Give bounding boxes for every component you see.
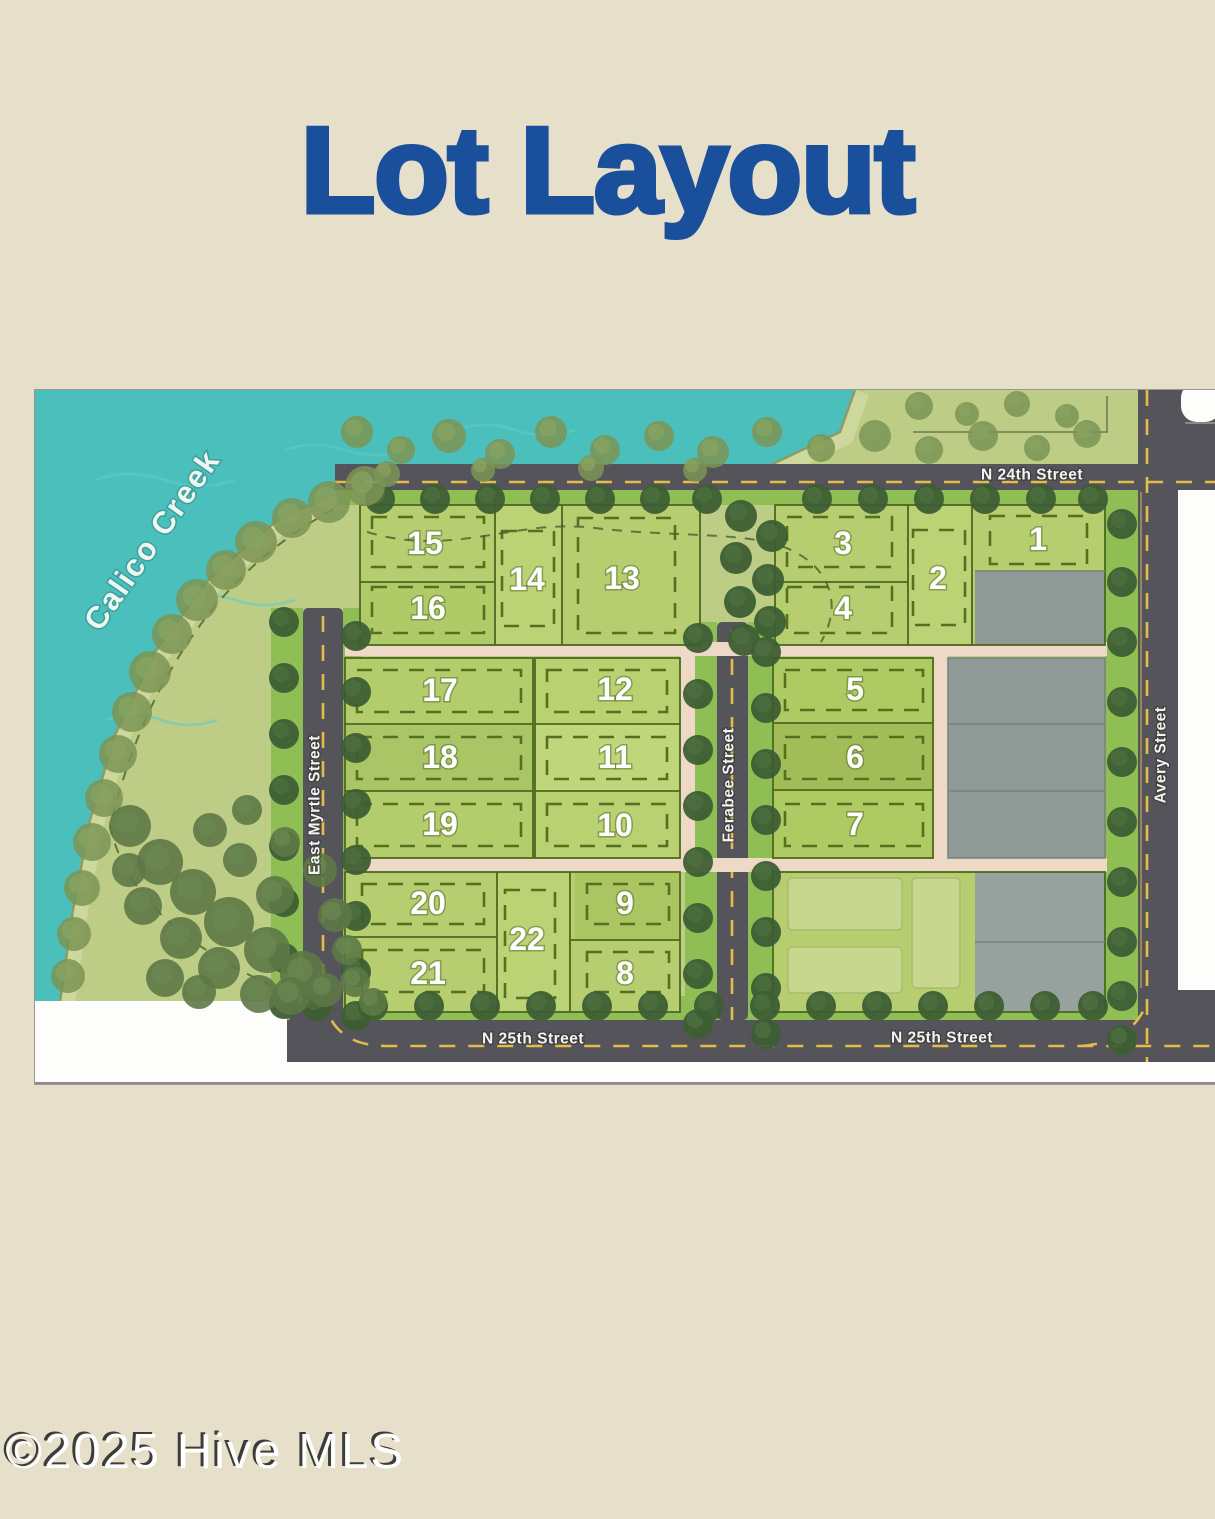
tree-icon [489,442,506,459]
street-label-ferabee: Ferabee Street [721,728,738,843]
tree-icon [424,487,441,504]
tree-icon [1111,870,1128,887]
tree-icon [755,920,772,937]
lot-number-20: 20 [410,885,446,921]
tree-icon [863,423,881,441]
tree-icon [474,994,491,1011]
tree-icon [273,610,290,627]
tree-icon [866,994,883,1011]
tree-icon [117,857,136,876]
tree-icon [648,424,665,441]
tree-icon [278,503,300,525]
tree-icon [273,666,290,683]
tree-icon [755,640,772,657]
tree-icon [1082,994,1099,1011]
tree-icon [345,419,363,437]
tree-icon [130,892,151,913]
tree-icon [644,487,661,504]
tree-icon [1034,994,1051,1011]
tree-icon [696,487,713,504]
lot-number-12: 12 [597,671,633,707]
tree-icon [687,850,704,867]
road-n-25th-street [287,1020,1215,1062]
tree-icon [336,938,353,955]
tree-icon [274,830,291,847]
gray-lots-east [948,658,1105,858]
lot-number-16: 16 [410,590,446,626]
tree-icon [390,438,405,453]
tree-icon [262,881,283,902]
tree-icon [758,609,776,627]
tree-icon [539,419,557,437]
tree-icon [756,567,774,585]
street-label-avery: Avery Street [1153,707,1170,804]
lot-number-22: 22 [509,921,545,957]
tree-icon [755,808,772,825]
tree-icon [135,656,158,679]
tree-icon [729,503,747,521]
tree-icon [1111,690,1128,707]
tree-icon [69,874,89,894]
tree-icon [246,980,267,1001]
tree-icon [908,394,923,409]
gray-lot-northeast [975,571,1105,645]
tree-icon [728,589,746,607]
tree-icon [177,875,202,900]
lot-number-21: 21 [410,955,446,991]
lot-number-15: 15 [407,525,443,561]
lot-number-5: 5 [846,671,864,707]
tree-icon [273,722,290,739]
tree-icon [212,904,240,932]
tree-icon [278,982,299,1003]
tree-icon [1111,570,1128,587]
tree-icon [1111,512,1128,529]
tree-icon [1111,750,1128,767]
tree-icon [724,545,742,563]
lot-number-11: 11 [598,739,632,775]
tree-icon [166,922,189,945]
lot-number-9: 9 [616,885,634,921]
tree-icon [862,487,879,504]
tree-icon [732,627,750,645]
tree-icon [251,933,276,958]
tree-icon [918,438,933,453]
tree-icon [978,994,995,1011]
page-title: Lot Layout [0,100,1215,240]
tree-icon [241,526,264,549]
tree-icon [530,994,547,1011]
tree-icon [313,977,332,996]
tree-icon [810,436,825,451]
tree-icon [152,964,173,985]
tree-icon [922,994,939,1011]
tree-icon [236,798,253,815]
white-corner-northeast [1181,390,1215,422]
tree-icon [56,963,75,982]
tree-icon [345,680,362,697]
tree-icon [158,619,180,641]
tree-icon [756,420,773,437]
tree-icon [760,523,778,541]
tree-icon [62,921,81,940]
lot-number-18: 18 [422,739,458,775]
lot-number-17: 17 [422,672,458,708]
tree-icon [687,962,704,979]
tree-icon [687,906,704,923]
tree-icon [418,994,435,1011]
tree-icon [581,457,595,471]
tree-icon [323,902,342,921]
tree-icon [810,994,827,1011]
tree-icon [345,736,362,753]
street-label-n25th-east: N 25th Street [891,1030,993,1047]
tree-icon [642,994,659,1011]
tree-icon [806,487,823,504]
tree-icon [182,584,205,607]
tree-icon [1111,630,1128,647]
tree-icon [687,738,704,755]
tree-icon [212,555,234,577]
tree-icon [687,794,704,811]
mls-watermark: ©2025 Hive MLS [6,1424,405,1480]
tree-icon [687,682,704,699]
tree-icon [91,784,112,805]
tree-icon [1082,487,1099,504]
tree-icon [345,848,362,865]
tree-icon [755,864,772,881]
white-area-east [1178,486,1215,1020]
lot-number-3: 3 [834,525,852,561]
lot-number-2: 2 [929,560,947,596]
lot-number-6: 6 [846,739,864,775]
site-plan-svg: Calico Creek N 24th Street N 25th Street… [35,390,1215,1082]
white-strip-south [35,1062,1215,1082]
tree-icon [314,486,337,509]
tree-icon [918,487,935,504]
tree-icon [754,994,771,1011]
tree-icon [755,976,772,993]
lot-number-8: 8 [616,955,634,991]
tree-icon [144,845,169,870]
tree-icon [1057,405,1070,418]
tree-icon [589,487,606,504]
tree-icon [228,847,247,866]
tree-icon [1027,437,1041,451]
tree-icon [198,817,217,836]
tree-icon [79,828,100,849]
street-label-east-myrtle: East Myrtle Street [307,735,324,875]
tree-icon [534,487,551,504]
lot-number-4: 4 [834,590,852,626]
tree-icon [755,752,772,769]
tree-icon [345,624,362,641]
lot-layout-map: Calico Creek N 24th Street N 25th Street… [35,390,1215,1084]
street-label-n25th-west: N 25th Street [482,1031,584,1048]
lot-number-19: 19 [422,806,458,842]
tree-icon [701,439,719,457]
tree-icon [1030,487,1047,504]
lot-number-7: 7 [846,806,864,842]
tree-icon [351,471,373,493]
tree-icon [187,979,206,998]
tree-icon [105,740,126,761]
tree-icon [698,994,715,1011]
tree-icon [687,626,704,643]
tree-icon [362,990,377,1005]
tree-icon [974,487,991,504]
tree-icon [1111,984,1128,1001]
tree-icon [755,1022,772,1039]
tree-icon [344,970,361,987]
tree-icon [473,459,486,472]
tree-icon [1007,393,1021,407]
tree-icon [273,778,290,795]
tree-icon [437,423,456,442]
tree-icon [755,696,772,713]
tree-icon [1111,810,1128,827]
tree-icon [1111,1028,1128,1045]
lot-number-13: 13 [604,560,640,596]
tree-icon [345,792,362,809]
lot-number-10: 10 [597,807,633,843]
lot-number-14: 14 [509,561,545,597]
street-label-n24th: N 24th Street [981,467,1083,484]
tree-icon [586,994,603,1011]
tree-icon [957,403,970,416]
tree-icon [479,487,496,504]
tree-icon [685,459,698,472]
tree-icon [118,697,140,719]
tree-icon [972,424,989,441]
tree-icon [594,438,611,455]
tree-icon [115,810,138,833]
tree-icon [204,952,227,975]
tree-icon [1111,930,1128,947]
tree-icon [1076,422,1091,437]
lot-number-1: 1 [1029,521,1047,557]
